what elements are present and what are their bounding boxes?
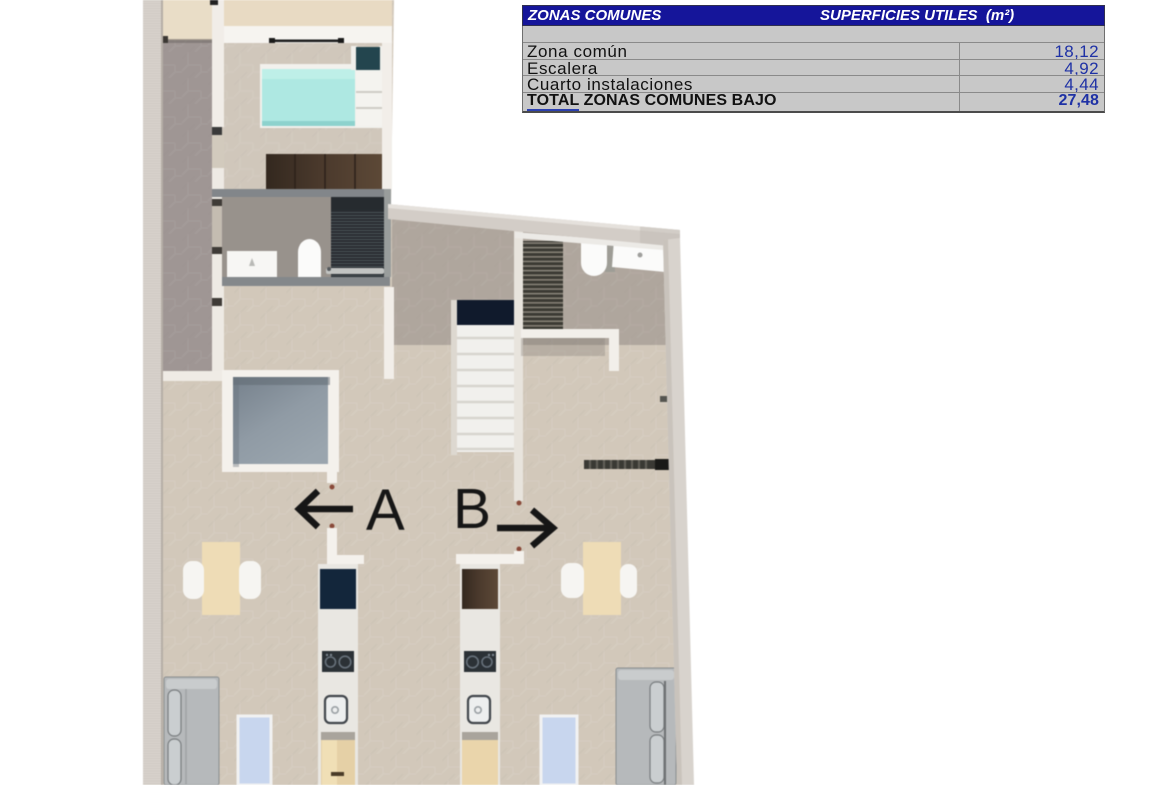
- svg-text:A: A: [366, 478, 405, 543]
- svg-text:B: B: [453, 477, 491, 541]
